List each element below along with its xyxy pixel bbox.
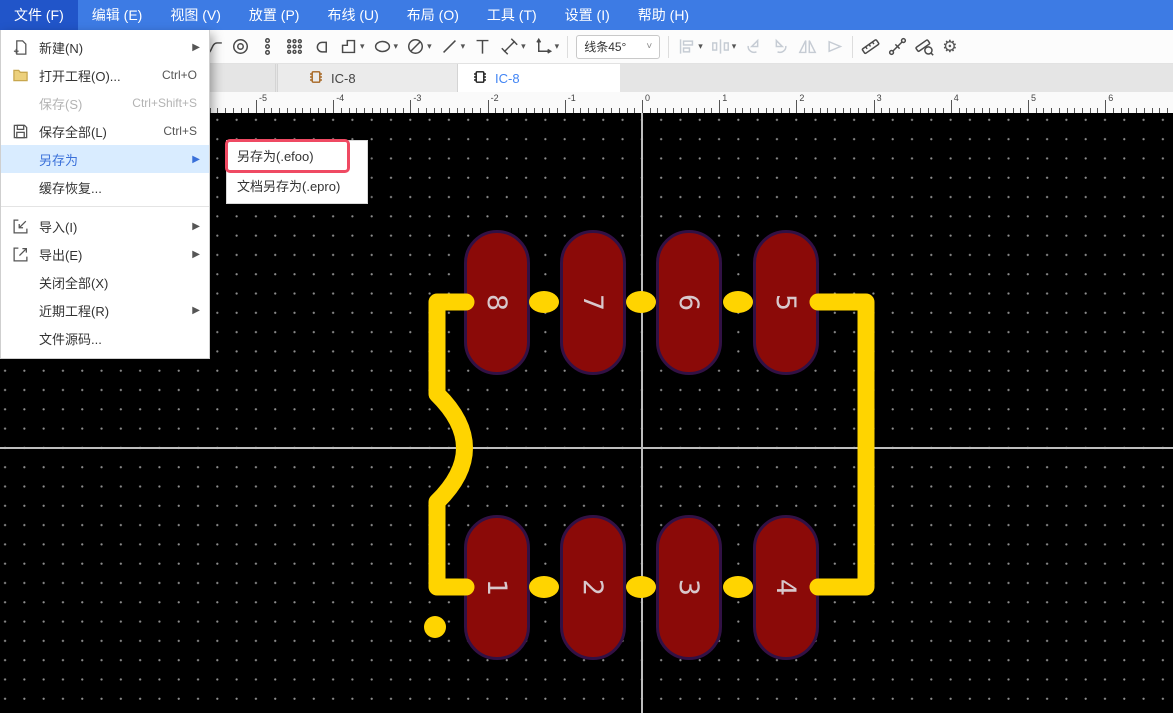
menu-item-label: 另存为 <box>39 150 78 169</box>
align-dropdown-caret[interactable]: ▾ <box>698 41 703 52</box>
polygon-icon[interactable]: ▾ <box>339 37 365 56</box>
silkscreen-dot[interactable] <box>529 291 559 313</box>
ruler-tick <box>333 100 334 113</box>
ruler-tick <box>1028 100 1029 113</box>
menu-separator <box>1 206 209 207</box>
menubar-item-6[interactable]: 布局 (O) <box>393 0 473 30</box>
ruler-tick <box>410 100 411 113</box>
tab-label: IC-8 <box>331 71 356 86</box>
menu-item-shortcut: Ctrl+Shift+S <box>132 96 197 110</box>
menubar-item-2[interactable]: 编辑 (E) <box>78 0 157 30</box>
menubar-item-9[interactable]: 帮助 (H) <box>624 0 703 30</box>
menu-item-label: 保存(S) <box>39 94 82 113</box>
menubar-item-3[interactable]: 视图 (V) <box>156 0 235 30</box>
menu-item-label: 文件源码... <box>39 329 102 348</box>
ruler-tick <box>565 100 566 113</box>
file-menu-item-9[interactable]: 导出(E)▶ <box>1 240 209 268</box>
ruler-tick <box>951 100 952 113</box>
dimension-dropdown-caret[interactable]: ▾ <box>521 41 526 52</box>
line-mode-value: 线条45° <box>584 38 626 55</box>
silkscreen-dot[interactable] <box>626 576 656 598</box>
submenu-arrow-icon: ▶ <box>192 42 200 53</box>
wire-length-icon[interactable] <box>888 37 907 56</box>
menu-item-shortcut: Ctrl+O <box>162 68 197 82</box>
file-menu-item-11[interactable]: 近期工程(R)▶ <box>1 296 209 324</box>
file-menu-item-8[interactable]: 导入(I)▶ <box>1 212 209 240</box>
menu-item-shortcut: Ctrl+S <box>163 124 197 138</box>
origin-icon[interactable]: ▾ <box>534 37 560 56</box>
file-menu-item-4[interactable]: 保存全部(L)Ctrl+S <box>1 117 209 145</box>
toolbar-separator <box>852 36 853 58</box>
ruler-tick <box>796 100 797 113</box>
rotate-left-icon[interactable] <box>744 37 763 56</box>
chevron-down-icon: ˅ <box>646 41 652 52</box>
ruler-label: 6 <box>1108 93 1113 103</box>
settings-gear-icon[interactable]: ⚙ <box>942 37 957 56</box>
save-all-icon <box>12 123 29 140</box>
toolbar-separator <box>567 36 568 58</box>
ruler-label: -1 <box>568 93 576 103</box>
submenu-arrow-icon: ▶ <box>192 249 200 260</box>
ruler-search-icon[interactable] <box>915 37 934 56</box>
ruler-label: 0 <box>645 93 650 103</box>
file-menu-item-10[interactable]: 关闭全部(X) <box>1 268 209 296</box>
align-icon[interactable]: ▾ <box>677 37 703 56</box>
line-mode-select[interactable]: 线条45°˅ <box>576 35 660 59</box>
menubar-item-1[interactable]: 文件 (F) <box>0 0 78 30</box>
ruler-tick <box>719 100 720 113</box>
silkscreen-left-outline[interactable] <box>437 302 466 587</box>
file-menu-item-1[interactable]: 新建(N)▶ <box>1 33 209 61</box>
line-icon[interactable]: ▾ <box>440 37 466 56</box>
save-as-submenu-item-1[interactable]: 另存为(.efoo) <box>227 142 367 172</box>
menubar-item-7[interactable]: 工具 (T) <box>473 0 551 30</box>
menu-item-label: 缓存恢复... <box>39 178 102 197</box>
silkscreen-dot[interactable] <box>626 291 656 313</box>
new-file-icon <box>12 39 29 56</box>
dimension-icon[interactable]: ▾ <box>500 37 526 56</box>
measure-ruler-icon[interactable] <box>861 37 880 56</box>
rotate-right-icon[interactable] <box>771 37 790 56</box>
folder-icon <box>12 67 29 84</box>
file-menu-item-5[interactable]: 另存为▶ <box>1 145 209 173</box>
menu-item-label: 导出(E) <box>39 245 82 264</box>
ruler-label: 2 <box>799 93 804 103</box>
ruler-tick <box>642 100 643 113</box>
ruler-label: -2 <box>491 93 499 103</box>
menu-item-label: 打开工程(O)... <box>39 66 121 85</box>
menu-item-label: 保存全部(L) <box>39 122 107 141</box>
via-icon[interactable] <box>231 37 250 56</box>
ruler-label: 4 <box>954 93 959 103</box>
save-as-submenu: 另存为(.efoo)文档另存为(.epro) <box>226 140 368 204</box>
export-icon <box>12 246 29 263</box>
distribute-icon[interactable]: ▾ <box>711 37 737 56</box>
footprint-chip-icon <box>308 69 324 88</box>
menu-item-label: 导入(I) <box>39 217 77 236</box>
file-menu-dropdown: 新建(N)▶打开工程(O)...Ctrl+O保存(S)Ctrl+Shift+S保… <box>0 30 210 359</box>
pin1-marker-dot[interactable] <box>424 616 446 638</box>
menu-item-label: 近期工程(R) <box>39 301 109 320</box>
pcb-editor-window: 87651234 -5-4-3-2-10123456 IC-8IC-8 ▾▾▾▾… <box>0 0 1173 713</box>
file-menu-item-12[interactable]: 文件源码... <box>1 324 209 352</box>
file-menu-item-6[interactable]: 缓存恢复... <box>1 173 209 201</box>
pad-column-icon[interactable] <box>258 37 277 56</box>
silkscreen-dot[interactable] <box>723 576 753 598</box>
tab-ic8-1[interactable]: IC-8 <box>277 64 458 92</box>
ruler-tick <box>256 100 257 113</box>
ellipse-icon[interactable]: ▾ <box>373 37 399 56</box>
distribute-dropdown-caret[interactable]: ▾ <box>732 41 737 52</box>
submenu-arrow-icon: ▶ <box>192 305 200 316</box>
ruler-label: 1 <box>722 93 727 103</box>
ruler-tick <box>488 100 489 113</box>
ruler-tick <box>874 100 875 113</box>
menu-item-label: 关闭全部(X) <box>39 273 108 292</box>
menu-bar: 文件 (F)编辑 (E)视图 (V)放置 (P)布线 (U)布局 (O)工具 (… <box>0 0 1173 30</box>
ruler-label: -3 <box>413 93 421 103</box>
ruler-tick <box>1105 100 1106 113</box>
file-menu-item-2[interactable]: 打开工程(O)...Ctrl+O <box>1 61 209 89</box>
menubar-item-8[interactable]: 设置 (I) <box>551 0 624 30</box>
origin-dropdown-caret[interactable]: ▾ <box>555 41 560 52</box>
menu-item-label: 新建(N) <box>39 38 83 57</box>
silkscreen-dot[interactable] <box>529 576 559 598</box>
ruler-label: 5 <box>1031 93 1036 103</box>
tab-ic8-2[interactable]: IC-8 <box>458 64 620 92</box>
ruler-label: 3 <box>877 93 882 103</box>
submenu-arrow-icon: ▶ <box>192 221 200 232</box>
submenu-arrow-icon: ▶ <box>192 154 200 165</box>
silkscreen-right-outline[interactable] <box>818 302 866 587</box>
flip-vertical-icon[interactable] <box>825 37 844 56</box>
keepout-icon[interactable]: ▾ <box>406 37 432 56</box>
tab-separator <box>275 64 276 92</box>
toolbar-separator <box>668 36 669 58</box>
menubar-item-5[interactable]: 布线 (U) <box>313 0 392 30</box>
import-icon <box>12 218 29 235</box>
silkscreen-dot[interactable] <box>723 291 753 313</box>
flip-horizontal-icon[interactable] <box>798 37 817 56</box>
line-dropdown-caret[interactable]: ▾ <box>461 41 466 52</box>
ruler-label: -5 <box>259 93 267 103</box>
keepout-dropdown-caret[interactable]: ▾ <box>427 41 432 52</box>
ruler-label: -4 <box>336 93 344 103</box>
menubar-item-4[interactable]: 放置 (P) <box>235 0 314 30</box>
tab-label: IC-8 <box>495 71 520 86</box>
footprint-chip-icon <box>472 69 488 88</box>
file-menu-item-3: 保存(S)Ctrl+Shift+S <box>1 89 209 117</box>
pad-shape-icon[interactable] <box>312 37 331 56</box>
polygon-dropdown-caret[interactable]: ▾ <box>360 41 365 52</box>
ellipse-dropdown-caret[interactable]: ▾ <box>394 41 399 52</box>
save-as-submenu-item-2[interactable]: 文档另存为(.epro) <box>227 172 367 202</box>
pad-array-icon[interactable] <box>285 37 304 56</box>
text-icon[interactable] <box>473 37 492 56</box>
